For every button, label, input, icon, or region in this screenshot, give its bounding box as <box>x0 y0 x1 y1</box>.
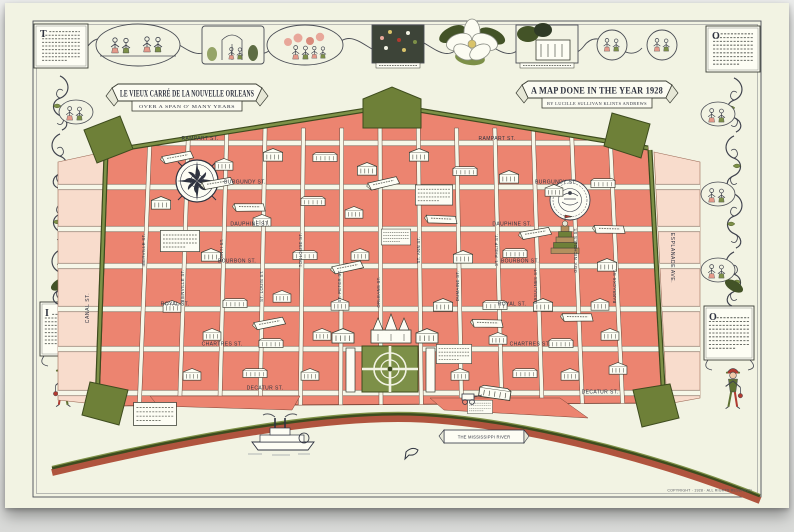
pontalba-left <box>346 348 355 392</box>
street-label-ursulines: URSULINES ST. <box>533 268 538 304</box>
map-title-year: A MAP DONE IN THE YEAR 1928 <box>531 86 663 96</box>
drop-cap: I <box>45 308 49 319</box>
street-label-chartres-right: CHARTRES ST. <box>510 342 551 348</box>
drop-cap: O <box>712 31 720 42</box>
river-banner: THE MISSISSIPPI RIVER <box>439 430 529 443</box>
title-banner-left: LE VIEUX CARRÉ DE LA NOUVELLE ORLEANS OV… <box>106 84 268 111</box>
vignette-mardi-gras <box>372 25 424 68</box>
framed-map-photo: T O I O <box>0 0 794 532</box>
drop-cap: T <box>40 29 47 40</box>
fish-icon <box>405 448 418 459</box>
right-border-scrollwork <box>701 78 745 306</box>
street-label-conti: CONTI ST. <box>219 238 224 261</box>
street-label-dauphine-left: DAUPHINE ST. <box>230 222 269 228</box>
map-subtitle-left: OVER A SPAN O' MANY YEARS <box>139 104 235 109</box>
street-label-toulouse: TOULOUSE ST. <box>298 233 303 268</box>
river-label: THE MISSISSIPPI RIVER <box>458 435 511 440</box>
street-label-dauphine-right: DAUPHINE ST. <box>492 222 531 228</box>
title-banner-right: A MAP DONE IN THE YEAR 1928 BY LUCILLE S… <box>516 81 678 108</box>
corner-text-top-right: O <box>706 26 760 72</box>
drop-cap: O <box>709 312 717 323</box>
street-label-decatur-right: DECATUR ST. <box>582 390 619 396</box>
copyright-line: COPYRIGHT · 1928 · ALL RIGHTS RESERVED <box>667 489 752 493</box>
street-label-rampart-right: RAMPART ST. <box>479 136 516 142</box>
street-label-st-peter: ST. PETER ST. <box>337 269 342 302</box>
bastion-bottom-left <box>82 382 128 425</box>
street-label-orleans: ORLEANS ST. <box>376 276 381 307</box>
street-label-st-louis: ST. LOUIS ST. <box>259 270 264 302</box>
corner-text-top-left: T <box>34 24 88 68</box>
street-label-royal-right: ROYAL ST. <box>498 302 527 308</box>
street-label-chartres-left: CHARTRES ST. <box>202 342 243 348</box>
street-label-bourbon-right: BOURBON ST. <box>501 259 539 265</box>
map-author: BY LUCILLE SULLIVAN KLINTS ANDREWS <box>547 101 647 106</box>
corner-text-bottom-right: O <box>704 306 754 370</box>
vignette-courtyard <box>202 26 264 64</box>
street-label-st-philip: ST. PHILIP ST. <box>494 234 499 267</box>
street-label-burgundy-right: BURGUNDY ST. <box>535 180 577 186</box>
vignette-figures-1 <box>96 24 180 66</box>
street-label-gov-nicholls: GOV. NICHOLLS ST. <box>573 227 578 273</box>
street-label-canal: CANAL ST. <box>85 293 91 324</box>
bastion-center <box>363 87 421 128</box>
vignette-crowd <box>267 25 343 65</box>
bastion-bottom-right <box>633 384 679 427</box>
street-label-barracks: BARRACKS ST. <box>612 269 617 304</box>
street-label-bienville: BIENVILLE ST. <box>180 269 185 302</box>
magnolia-flower-icon <box>436 19 507 67</box>
vignette-figures-2 <box>597 30 677 60</box>
street-label-rampart-left: RAMPART ST. <box>182 136 219 142</box>
jester-icon-right <box>726 368 743 408</box>
top-border-vignettes <box>88 19 677 68</box>
pontalba-right <box>426 348 435 392</box>
street-label-esplanade: ESPLANADE AVE. <box>669 233 675 284</box>
street-label-st-ann: ST. ANN ST. <box>416 237 421 264</box>
street-label-iberville: IBERVILLE ST. <box>141 234 146 267</box>
street-label-royal-left: ROYAL ST. <box>161 302 190 308</box>
street-label-dumaine: DUMAINE ST. <box>455 271 460 302</box>
vignette-old-building <box>516 23 578 68</box>
vieux-carre-map: T O I O <box>0 0 794 532</box>
street-label-burgundy-left: BURGUNDY ST. <box>224 180 266 186</box>
map-title-french: LE VIEUX CARRÉ DE LA NOUVELLE ORLEANS <box>120 89 254 99</box>
street-label-decatur-left: DECATUR ST. <box>247 386 284 392</box>
